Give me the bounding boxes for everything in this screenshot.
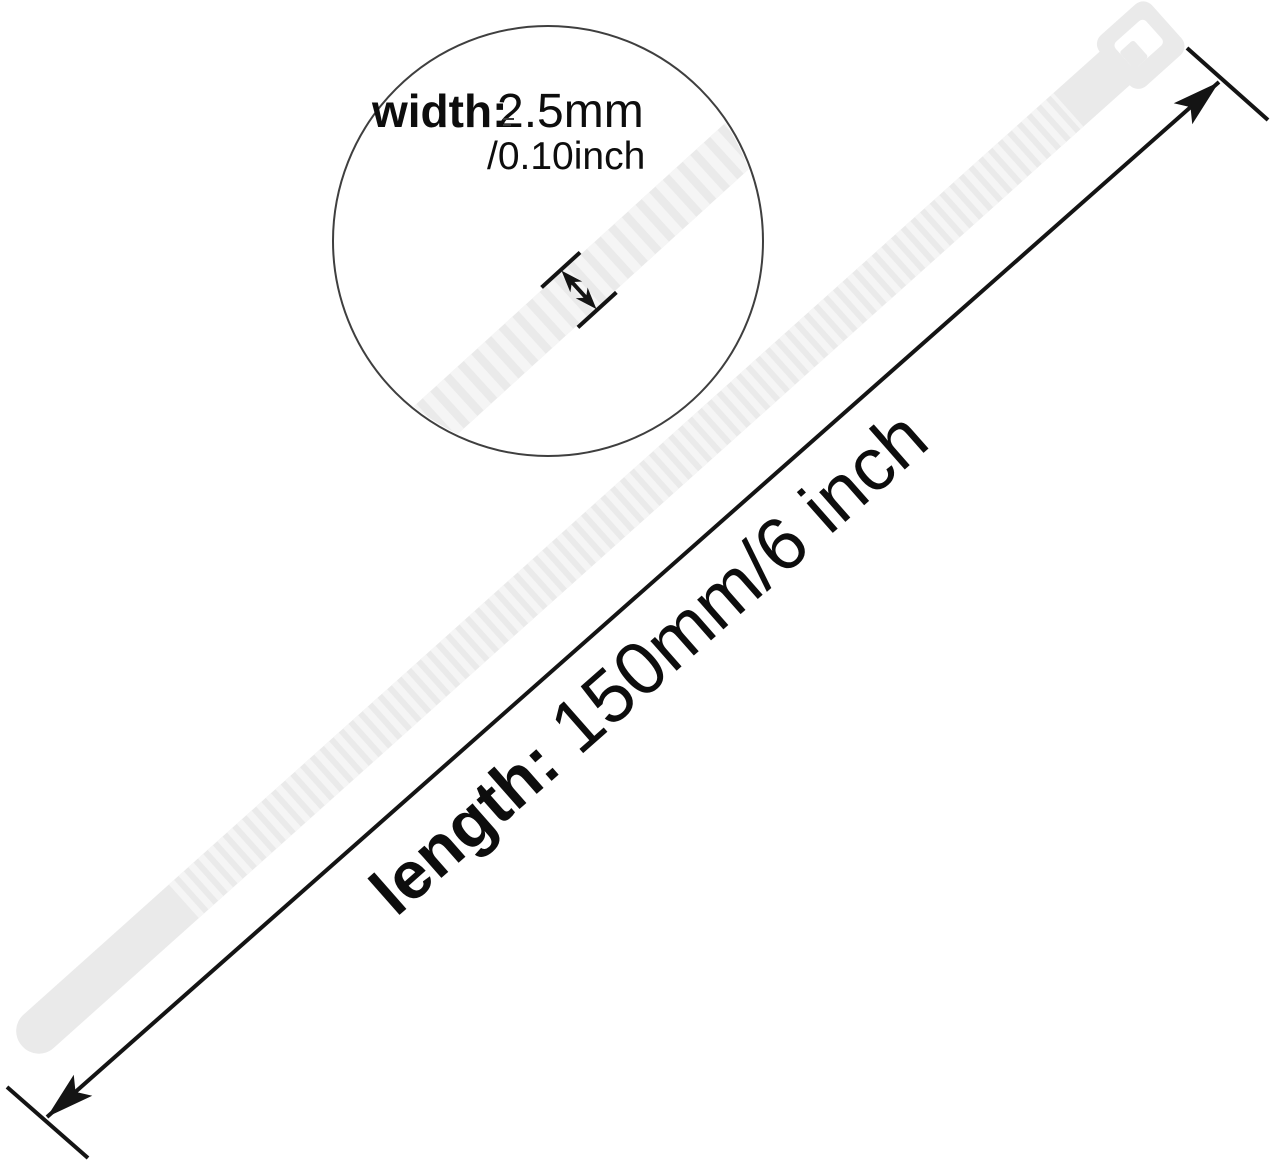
product-dimension-image: width: 2.5mm /0.10inch length: 150mm/6 i… xyxy=(0,0,1270,1165)
length-label: length: xyxy=(356,725,573,929)
width-value-inch: /0.10inch xyxy=(487,135,645,178)
width-value-mm: 2.5mm xyxy=(497,85,644,138)
diagram-canvas: width: 2.5mm /0.10inch length: 150mm/6 i… xyxy=(0,0,1270,1165)
width-label: width: xyxy=(371,85,507,137)
